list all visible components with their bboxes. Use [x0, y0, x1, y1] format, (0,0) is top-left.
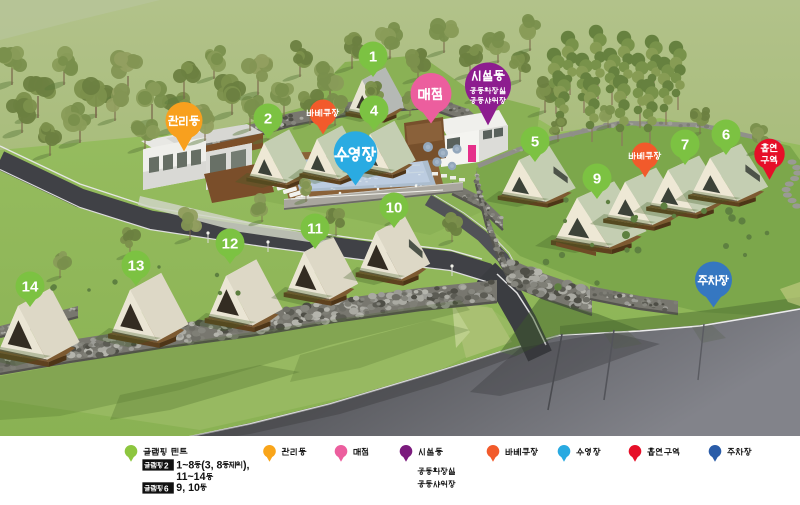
- svg-text:9, 10: 9, 10: [176, 482, 200, 494]
- svg-text:1~8: 1~8: [176, 459, 194, 471]
- svg-text:10: 10: [386, 199, 403, 216]
- svg-text:1: 1: [369, 48, 377, 65]
- svg-text:4: 4: [370, 102, 379, 119]
- svg-text:9: 9: [593, 170, 601, 187]
- svg-text:6: 6: [164, 484, 169, 493]
- svg-text:7: 7: [681, 136, 689, 153]
- svg-text:12: 12: [222, 235, 239, 252]
- svg-text:2: 2: [164, 461, 169, 470]
- svg-text:2: 2: [264, 110, 272, 127]
- svg-text:),: ),: [243, 459, 250, 471]
- svg-text:5: 5: [531, 133, 539, 150]
- svg-text:6: 6: [722, 126, 730, 143]
- svg-text:(3, 8: (3, 8: [201, 459, 222, 471]
- svg-text:11: 11: [307, 220, 323, 237]
- svg-text:13: 13: [128, 257, 145, 274]
- svg-text:14: 14: [22, 278, 39, 295]
